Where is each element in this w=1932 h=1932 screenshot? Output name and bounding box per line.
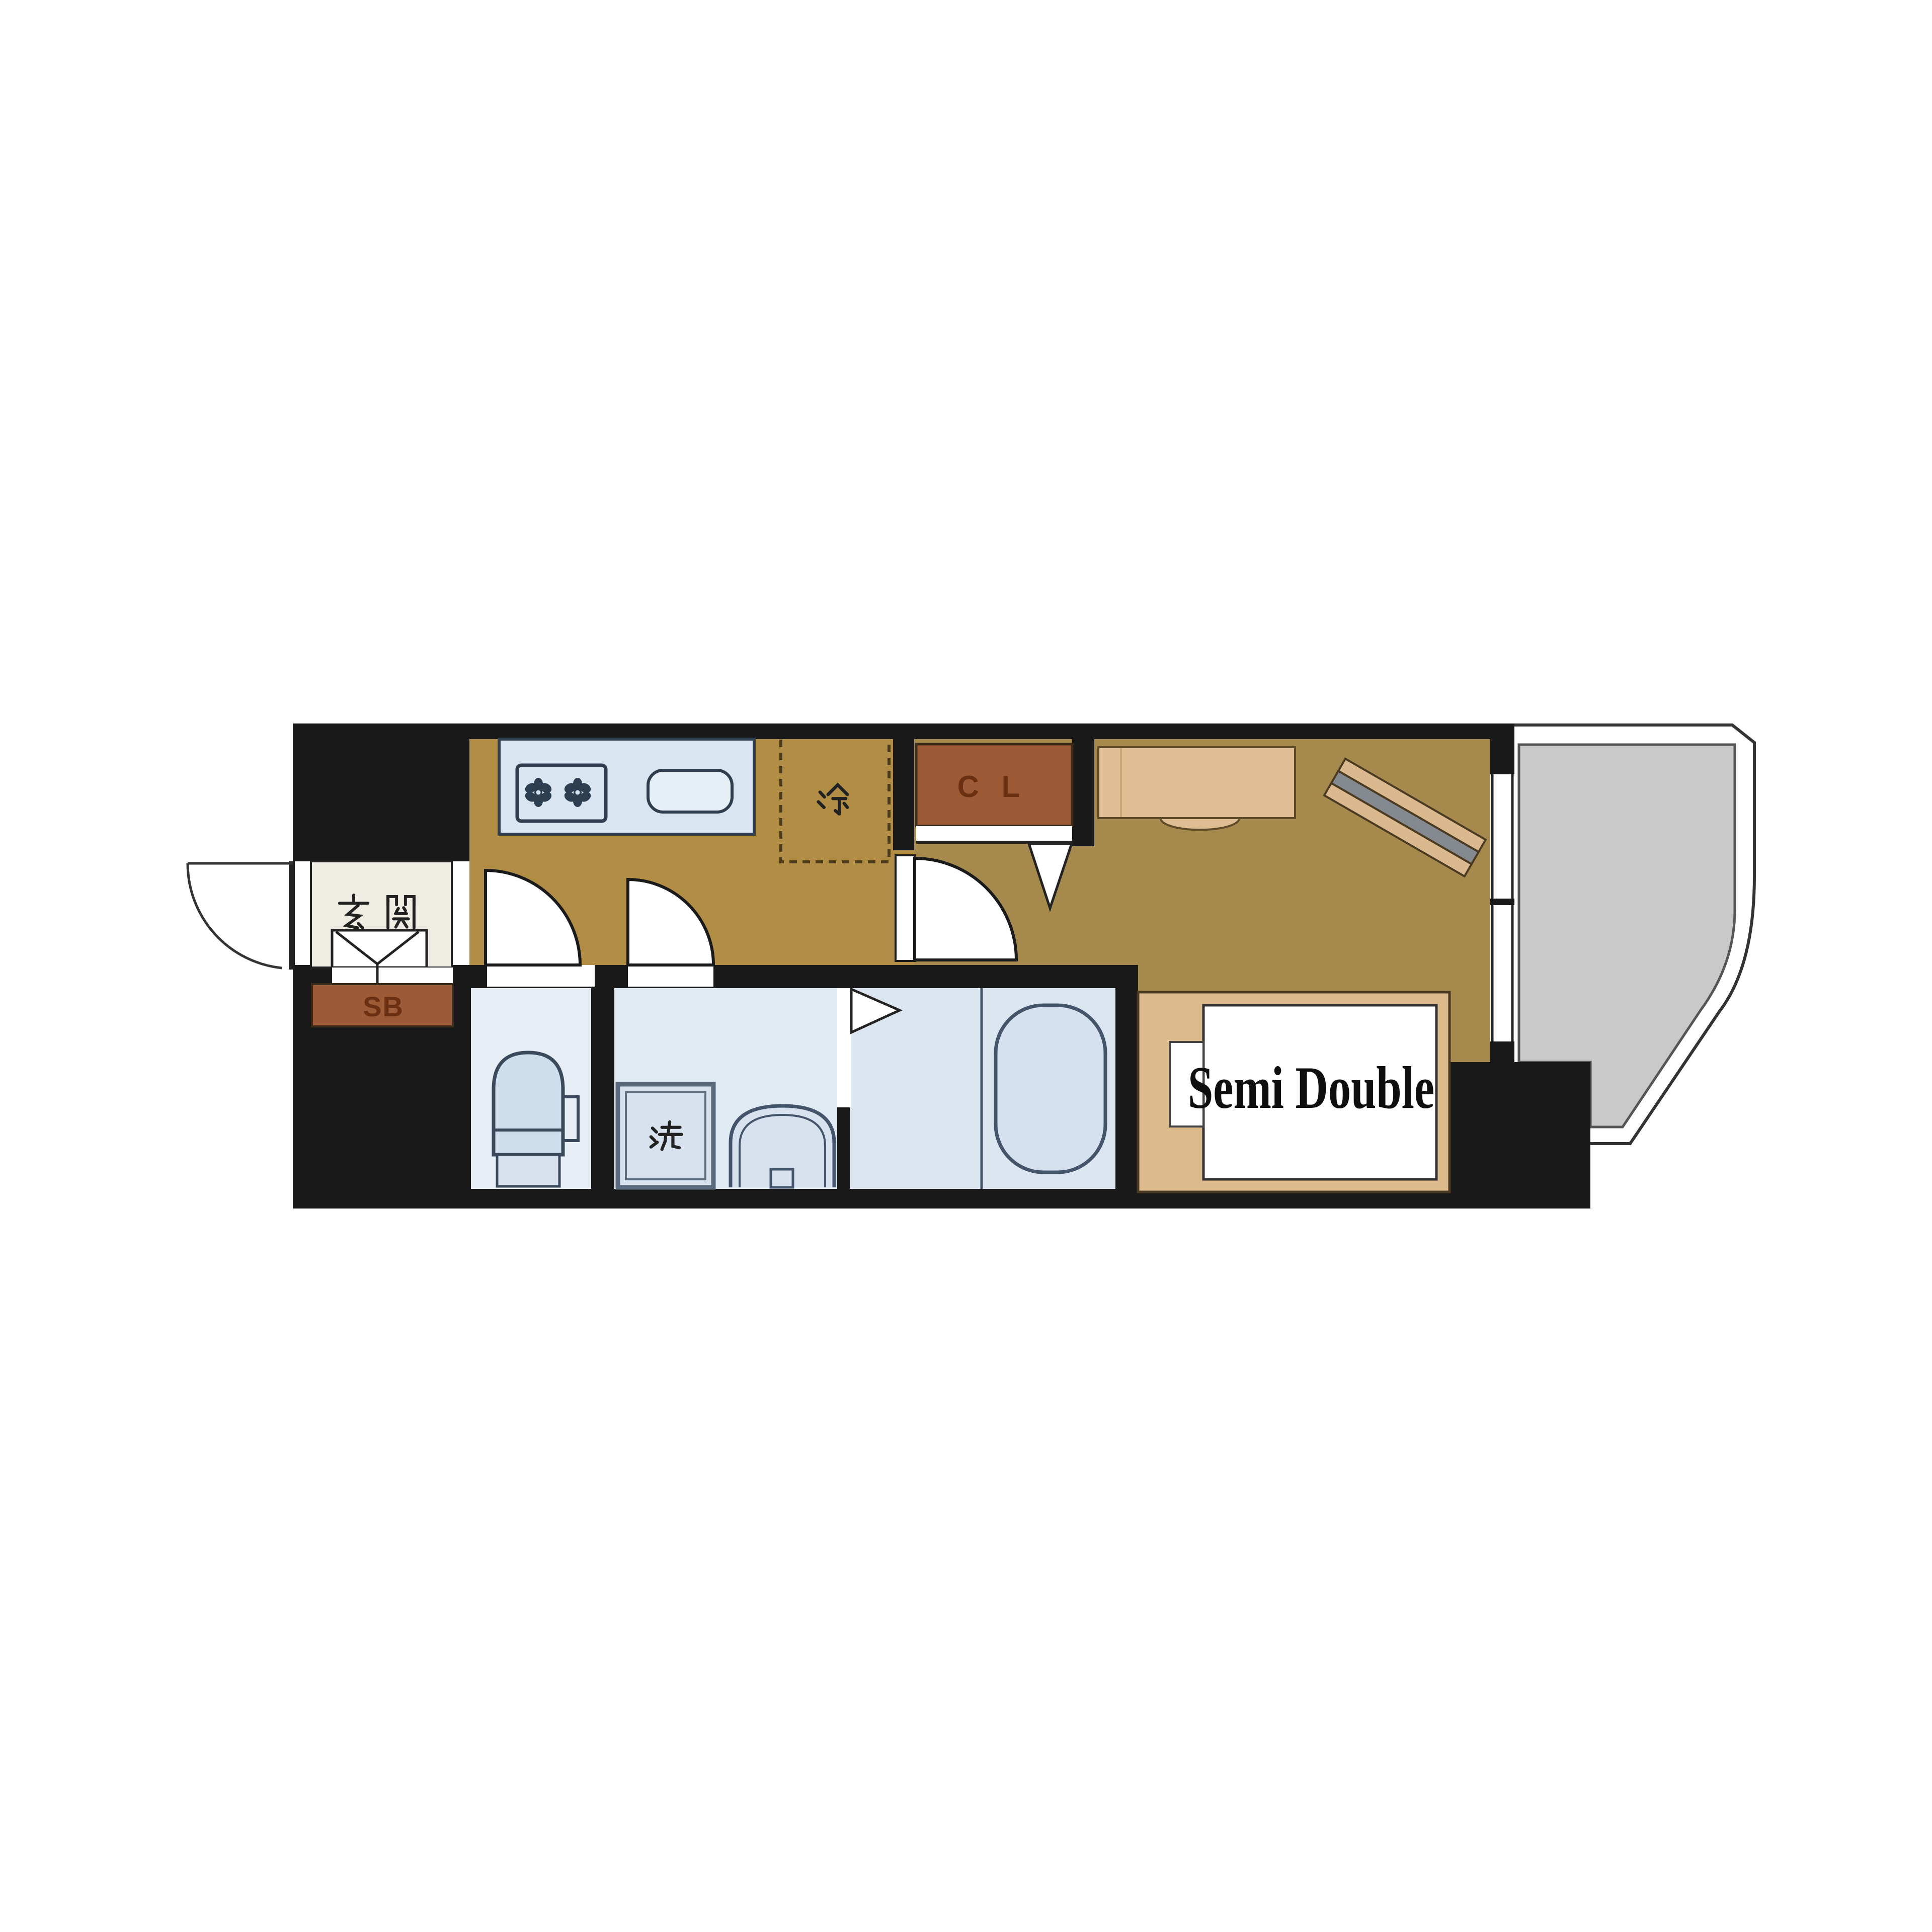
svg-text:SB: SB <box>363 991 404 1022</box>
svg-text:C L: C L <box>957 770 1027 803</box>
svg-text:Semi Double: Semi Double <box>1188 1054 1434 1121</box>
